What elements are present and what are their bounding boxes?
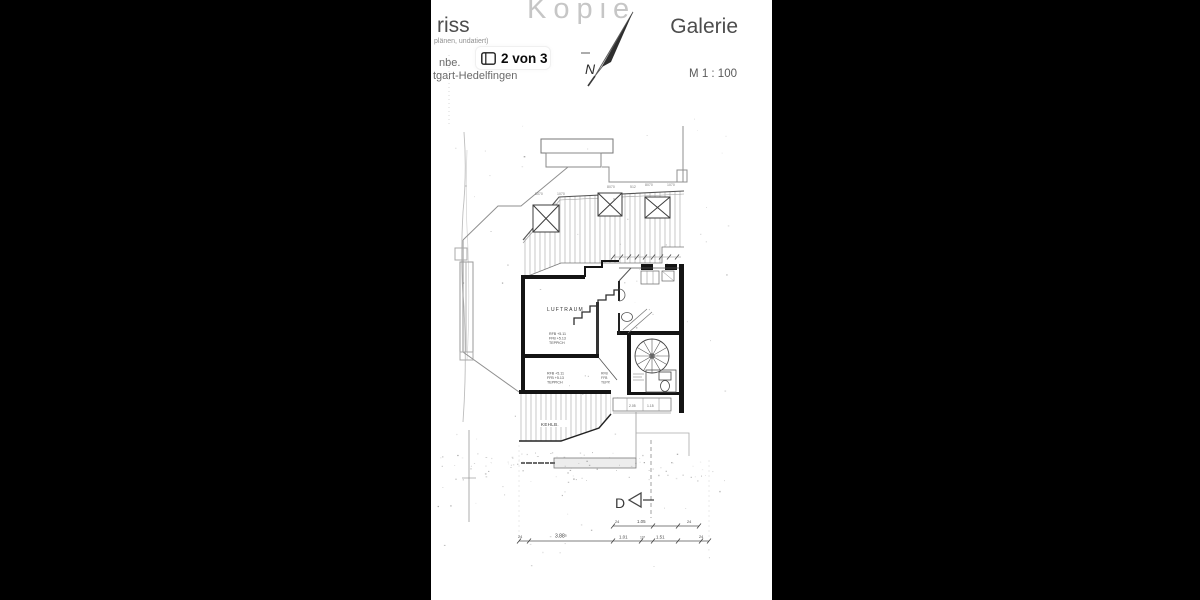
bathroom <box>619 268 679 334</box>
svg-text:1.51: 1.51 <box>656 535 665 540</box>
svg-text:TEPP.: TEPP. <box>601 381 611 385</box>
svg-text:8070: 8070 <box>607 185 615 189</box>
svg-text:512: 512 <box>630 185 636 189</box>
svg-text:1.15: 1.15 <box>647 404 654 408</box>
toilet-fixture <box>622 313 633 322</box>
svg-text:1.05: 1.05 <box>637 519 646 524</box>
scan-fold-artifact <box>449 55 469 422</box>
section-marker: D <box>615 493 654 511</box>
scanned-plan-page: Kopie riss plänen, undatiert) nbe. 2 von… <box>431 0 772 600</box>
spiral-staircase <box>635 339 669 373</box>
svg-text:24: 24 <box>699 535 703 539</box>
svg-text:RFB +5.11: RFB +5.11 <box>547 372 564 376</box>
svg-text:24: 24 <box>615 520 619 524</box>
terrace-edge <box>462 412 689 522</box>
svg-text:1070: 1070 <box>557 192 565 196</box>
svg-text:FFB +5.13: FFB +5.13 <box>549 337 566 341</box>
skylight-windows <box>533 193 670 232</box>
window-row: 2.05 1.15 <box>613 398 671 413</box>
floor-level-block-3: RFB FFB TEPP. <box>601 372 611 385</box>
svg-text:10⁵: 10⁵ <box>640 536 646 540</box>
svg-text:8070: 8070 <box>645 183 653 187</box>
svg-text:TEPPICH: TEPPICH <box>549 341 565 345</box>
svg-text:RFB: RFB <box>601 372 609 376</box>
wc-room <box>633 370 676 392</box>
screenshot-root: { "page": { "background": "#000000", "pa… <box>0 0 1200 600</box>
scan-noise <box>438 119 730 567</box>
svg-text:1.01: 1.01 <box>619 535 628 540</box>
floor-plan-drawing: 8070 1070 8070 512 8070 1070 <box>431 0 772 600</box>
void-room-label: LUFTRAUM <box>547 307 584 313</box>
svg-text:1070: 1070 <box>667 183 675 187</box>
collar-beam-hatching <box>521 394 611 441</box>
svg-text:D: D <box>615 495 625 511</box>
svg-text:2.05: 2.05 <box>629 404 636 408</box>
collar-beam-label: KEHLB. <box>541 422 559 427</box>
floor-level-block-1: RFB +5.11 FFB +5.13 TEPPICH <box>549 332 566 345</box>
collar-beam-border <box>519 414 611 441</box>
svg-text:8070: 8070 <box>535 192 543 196</box>
svg-text:FFB +5.13: FFB +5.13 <box>547 376 564 380</box>
svg-text:TEPPICH: TEPPICH <box>547 381 563 385</box>
upper-dimension-line: 24 1.05 24 <box>611 519 701 529</box>
svg-text:RFB +5.11: RFB +5.11 <box>549 332 566 336</box>
interior-walls <box>519 264 684 413</box>
svg-text:24: 24 <box>518 535 522 539</box>
svg-text:24: 24 <box>687 520 691 524</box>
floor-level-block-2: RFB +5.11 FFB +5.13 TEPPICH <box>547 372 564 385</box>
svg-text:3.88⁵: 3.88⁵ <box>555 534 567 540</box>
svg-text:FFB: FFB <box>601 376 608 380</box>
